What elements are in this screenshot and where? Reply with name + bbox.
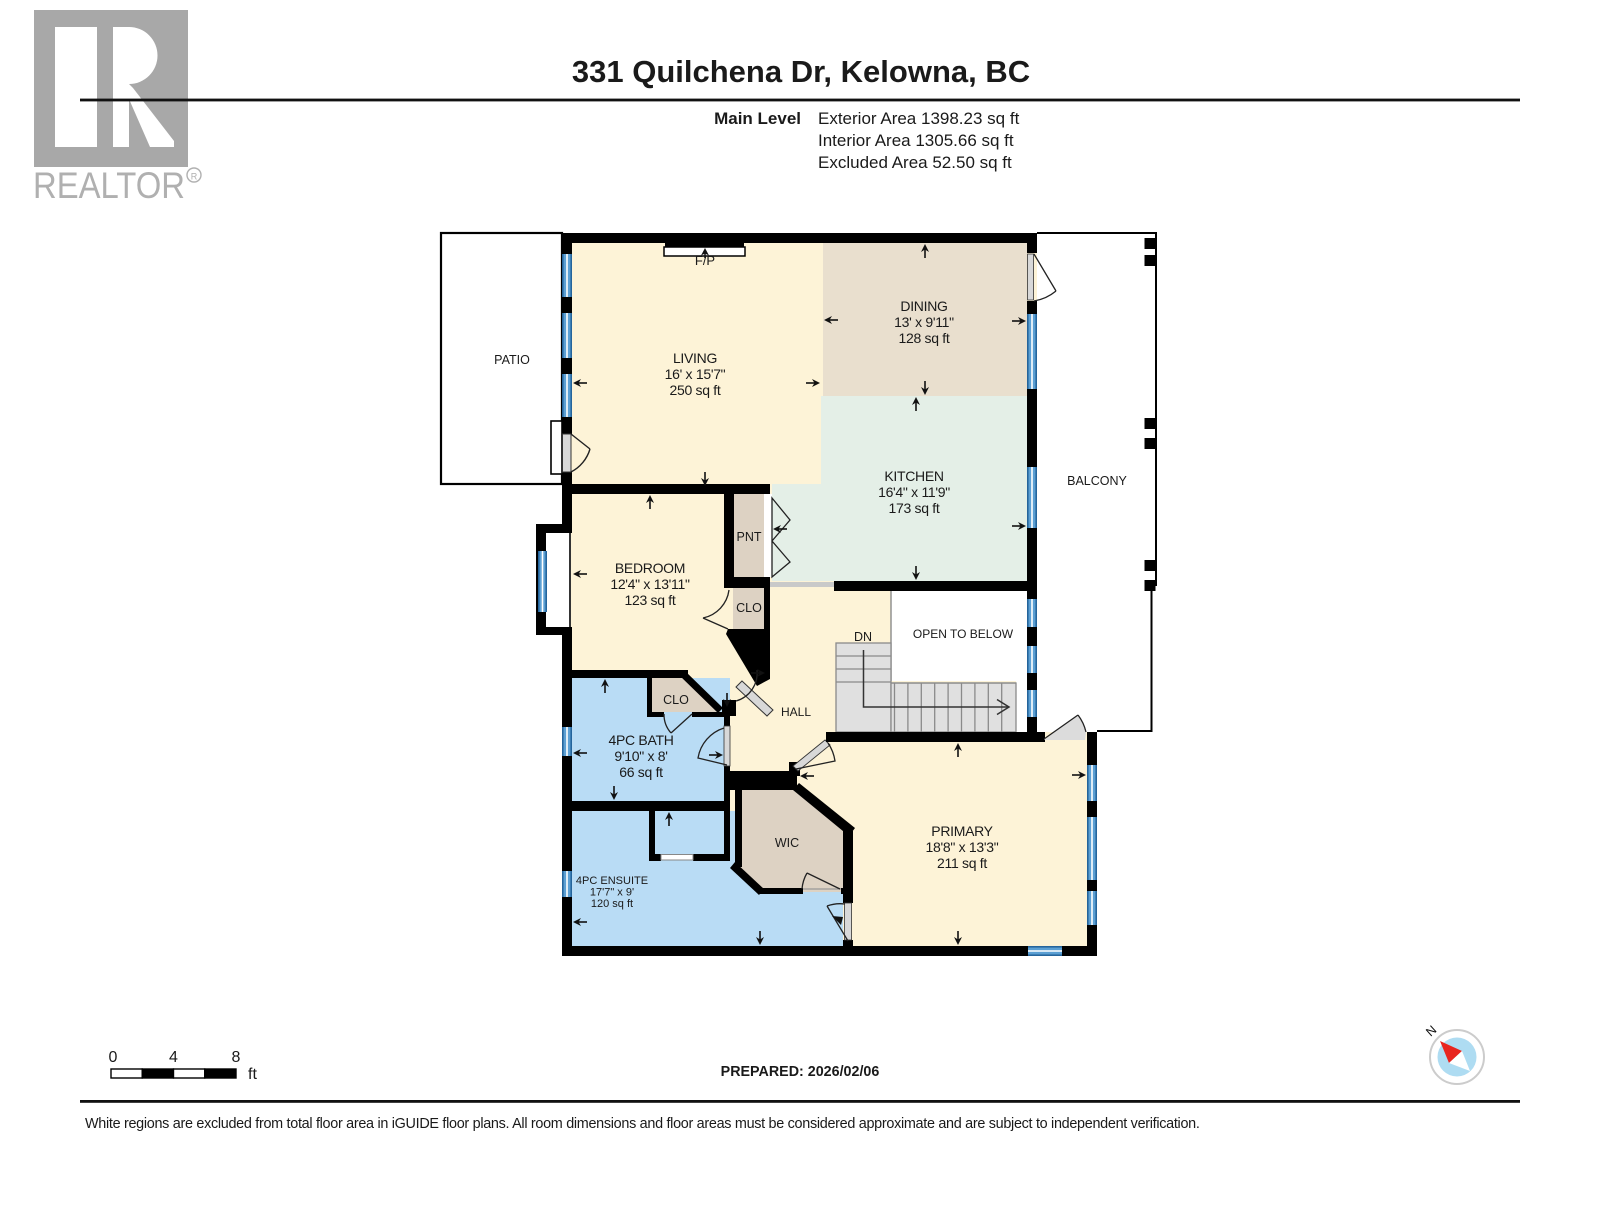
svg-text:PATIO: PATIO (494, 353, 530, 367)
svg-text:PNT: PNT (737, 530, 762, 544)
svg-text:13' x 9'11": 13' x 9'11" (894, 314, 954, 330)
svg-text:WIC: WIC (775, 836, 799, 850)
svg-text:BALCONY: BALCONY (1067, 474, 1127, 488)
svg-text:211 sq ft: 211 sq ft (937, 855, 987, 871)
svg-text:250 sq ft: 250 sq ft (669, 382, 720, 398)
svg-text:128 sq ft: 128 sq ft (898, 330, 949, 346)
svg-text:66 sq ft: 66 sq ft (619, 764, 663, 780)
svg-text:ft: ft (248, 1066, 257, 1083)
svg-text:OPEN TO BELOW: OPEN TO BELOW (913, 627, 1014, 641)
svg-text:4PC BATH: 4PC BATH (608, 732, 673, 748)
svg-text:17'7" x 9': 17'7" x 9' (590, 887, 634, 899)
svg-text:PREPARED: 2026/02/06: PREPARED: 2026/02/06 (721, 1064, 880, 1080)
svg-text:16'4" x 11'9": 16'4" x 11'9" (878, 484, 950, 500)
svg-text:LIVING: LIVING (673, 350, 717, 366)
svg-text:CLO: CLO (736, 601, 762, 615)
svg-text:8: 8 (232, 1049, 241, 1066)
svg-text:Interior Area 1305.66 sq ft: Interior Area 1305.66 sq ft (818, 131, 1014, 150)
svg-text:Excluded Area 52.50 sq ft: Excluded Area 52.50 sq ft (818, 153, 1012, 172)
svg-text:120 sq ft: 120 sq ft (591, 898, 633, 910)
svg-text:Main Level: Main Level (714, 109, 801, 128)
svg-text:HALL: HALL (781, 705, 811, 719)
svg-text:BEDROOM: BEDROOM (615, 560, 685, 576)
svg-text:REALTOR: REALTOR (33, 165, 185, 206)
svg-text:4PC ENSUITE: 4PC ENSUITE (576, 875, 648, 887)
svg-text:12'4" x 13'11": 12'4" x 13'11" (610, 576, 690, 592)
svg-text:18'8" x 13'3": 18'8" x 13'3" (926, 839, 999, 855)
svg-text:Exterior Area 1398.23 sq ft: Exterior Area 1398.23 sq ft (818, 109, 1020, 128)
svg-text:White regions are excluded fro: White regions are excluded from total fl… (85, 1116, 1200, 1132)
svg-text:PRIMARY: PRIMARY (931, 823, 993, 839)
svg-text:DINING: DINING (900, 298, 947, 314)
svg-text:DN: DN (854, 630, 872, 644)
svg-text:173 sq ft: 173 sq ft (888, 500, 939, 516)
svg-text:0: 0 (109, 1049, 118, 1066)
svg-text:CLO: CLO (663, 693, 689, 707)
svg-text:9'10" x 8': 9'10" x 8' (614, 748, 667, 764)
svg-text:KITCHEN: KITCHEN (884, 468, 943, 484)
svg-text:123 sq ft: 123 sq ft (624, 592, 675, 608)
svg-text:16' x 15'7": 16' x 15'7" (665, 366, 726, 382)
svg-text:4: 4 (169, 1049, 178, 1066)
svg-text:331 Quilchena Dr, Kelowna, BC: 331 Quilchena Dr, Kelowna, BC (572, 54, 1030, 89)
svg-text:R: R (191, 172, 198, 182)
